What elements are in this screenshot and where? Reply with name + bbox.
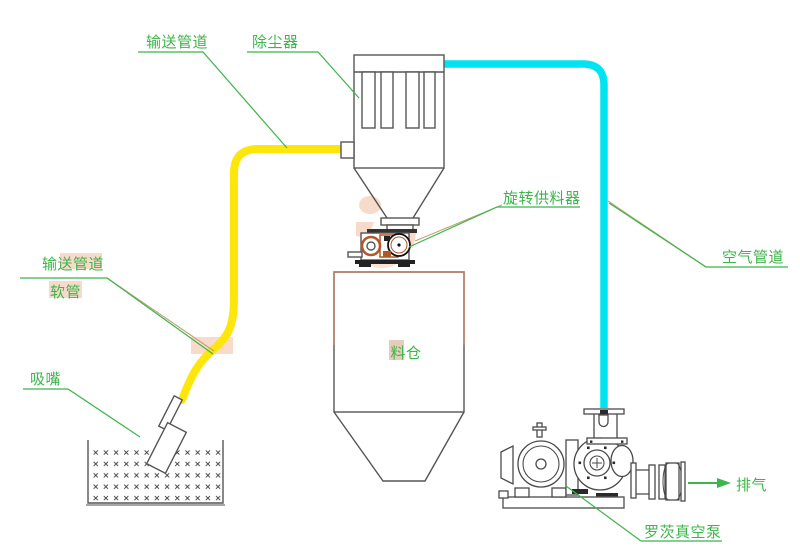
feeder-foot <box>398 264 410 267</box>
flange-bolt <box>621 441 623 443</box>
label-dust-collector: 除尘器 <box>252 34 299 51</box>
pneumatic-conveying-diagram: 输送管道 除尘器 旋转供料器 料仓 输送管道 软管 吸嘴 空气管道 排气 罗茨真… <box>0 0 800 557</box>
motor-foot <box>515 488 529 497</box>
label-hose-line1: 输送管道 <box>42 256 104 273</box>
label-air-pipe: 空气管道 <box>722 249 784 266</box>
air-pipe-cyan <box>443 64 604 408</box>
cone-outlet-flange <box>381 218 419 225</box>
label-rotary-feeder: 旋转供料器 <box>503 190 581 207</box>
label-hose-line2: 软管 <box>50 284 81 301</box>
feeder-shaft-dot <box>397 243 400 246</box>
feeder-foot <box>359 264 371 267</box>
inlet-sight-plug <box>599 415 608 427</box>
exhaust-arrow <box>688 478 731 488</box>
outlet-flange-0 <box>631 463 636 498</box>
flange-bolt <box>590 441 592 443</box>
label-exhaust: 排气 <box>736 477 767 494</box>
pump-foot-bar <box>596 493 618 496</box>
leader-rotary-feeder <box>409 207 580 247</box>
pump-side-bulge <box>611 446 633 477</box>
filter-bag <box>381 72 393 128</box>
inlet-gasket <box>600 410 608 414</box>
label-silo: 料仓 <box>390 345 421 362</box>
feeder-side-stub <box>348 252 362 257</box>
feeder-detail <box>384 236 390 241</box>
roots-vacuum-pump <box>499 409 685 508</box>
filter-bag <box>362 72 375 128</box>
feeder-drive-hub <box>367 242 375 250</box>
motor-hub <box>536 459 546 469</box>
exhaust-arrow-head <box>717 478 731 488</box>
label-roots-pump: 罗茨真空泵 <box>644 523 722 541</box>
outlet-flange-1 <box>649 465 655 499</box>
feeder-base <box>355 260 415 264</box>
filter-bag <box>424 72 435 128</box>
filter-bag <box>406 72 419 128</box>
motor-eyebolt-bar <box>533 427 546 430</box>
outlet-pipe-lines <box>636 470 649 494</box>
silo <box>334 272 464 481</box>
silo-hopper <box>334 412 464 481</box>
leader-suction-nozzle <box>23 389 140 437</box>
leader-hose <box>20 278 213 354</box>
motor-fan-cowl <box>501 446 513 484</box>
motor-foot <box>552 488 566 497</box>
inlet-stub <box>341 142 354 158</box>
conveying-pipe-yellow <box>182 149 346 400</box>
dust-collector <box>341 55 444 230</box>
pump-base-lug <box>499 491 508 498</box>
feeder-detail-orange <box>383 251 391 257</box>
label-conveying-pipe: 输送管道 <box>146 34 208 51</box>
diagram-canvas: 输送管道 除尘器 旋转供料器 料仓 输送管道 软管 吸嘴 空气管道 排气 罗茨真… <box>0 0 800 557</box>
outlet-end-flange <box>681 462 685 501</box>
silencer-barrel <box>666 463 679 500</box>
pump-base-plate <box>503 497 624 508</box>
leader-conveying-pipe <box>138 52 287 148</box>
leader-dust-collector <box>247 52 359 98</box>
label-suction-nozzle: 吸嘴 <box>30 371 61 388</box>
